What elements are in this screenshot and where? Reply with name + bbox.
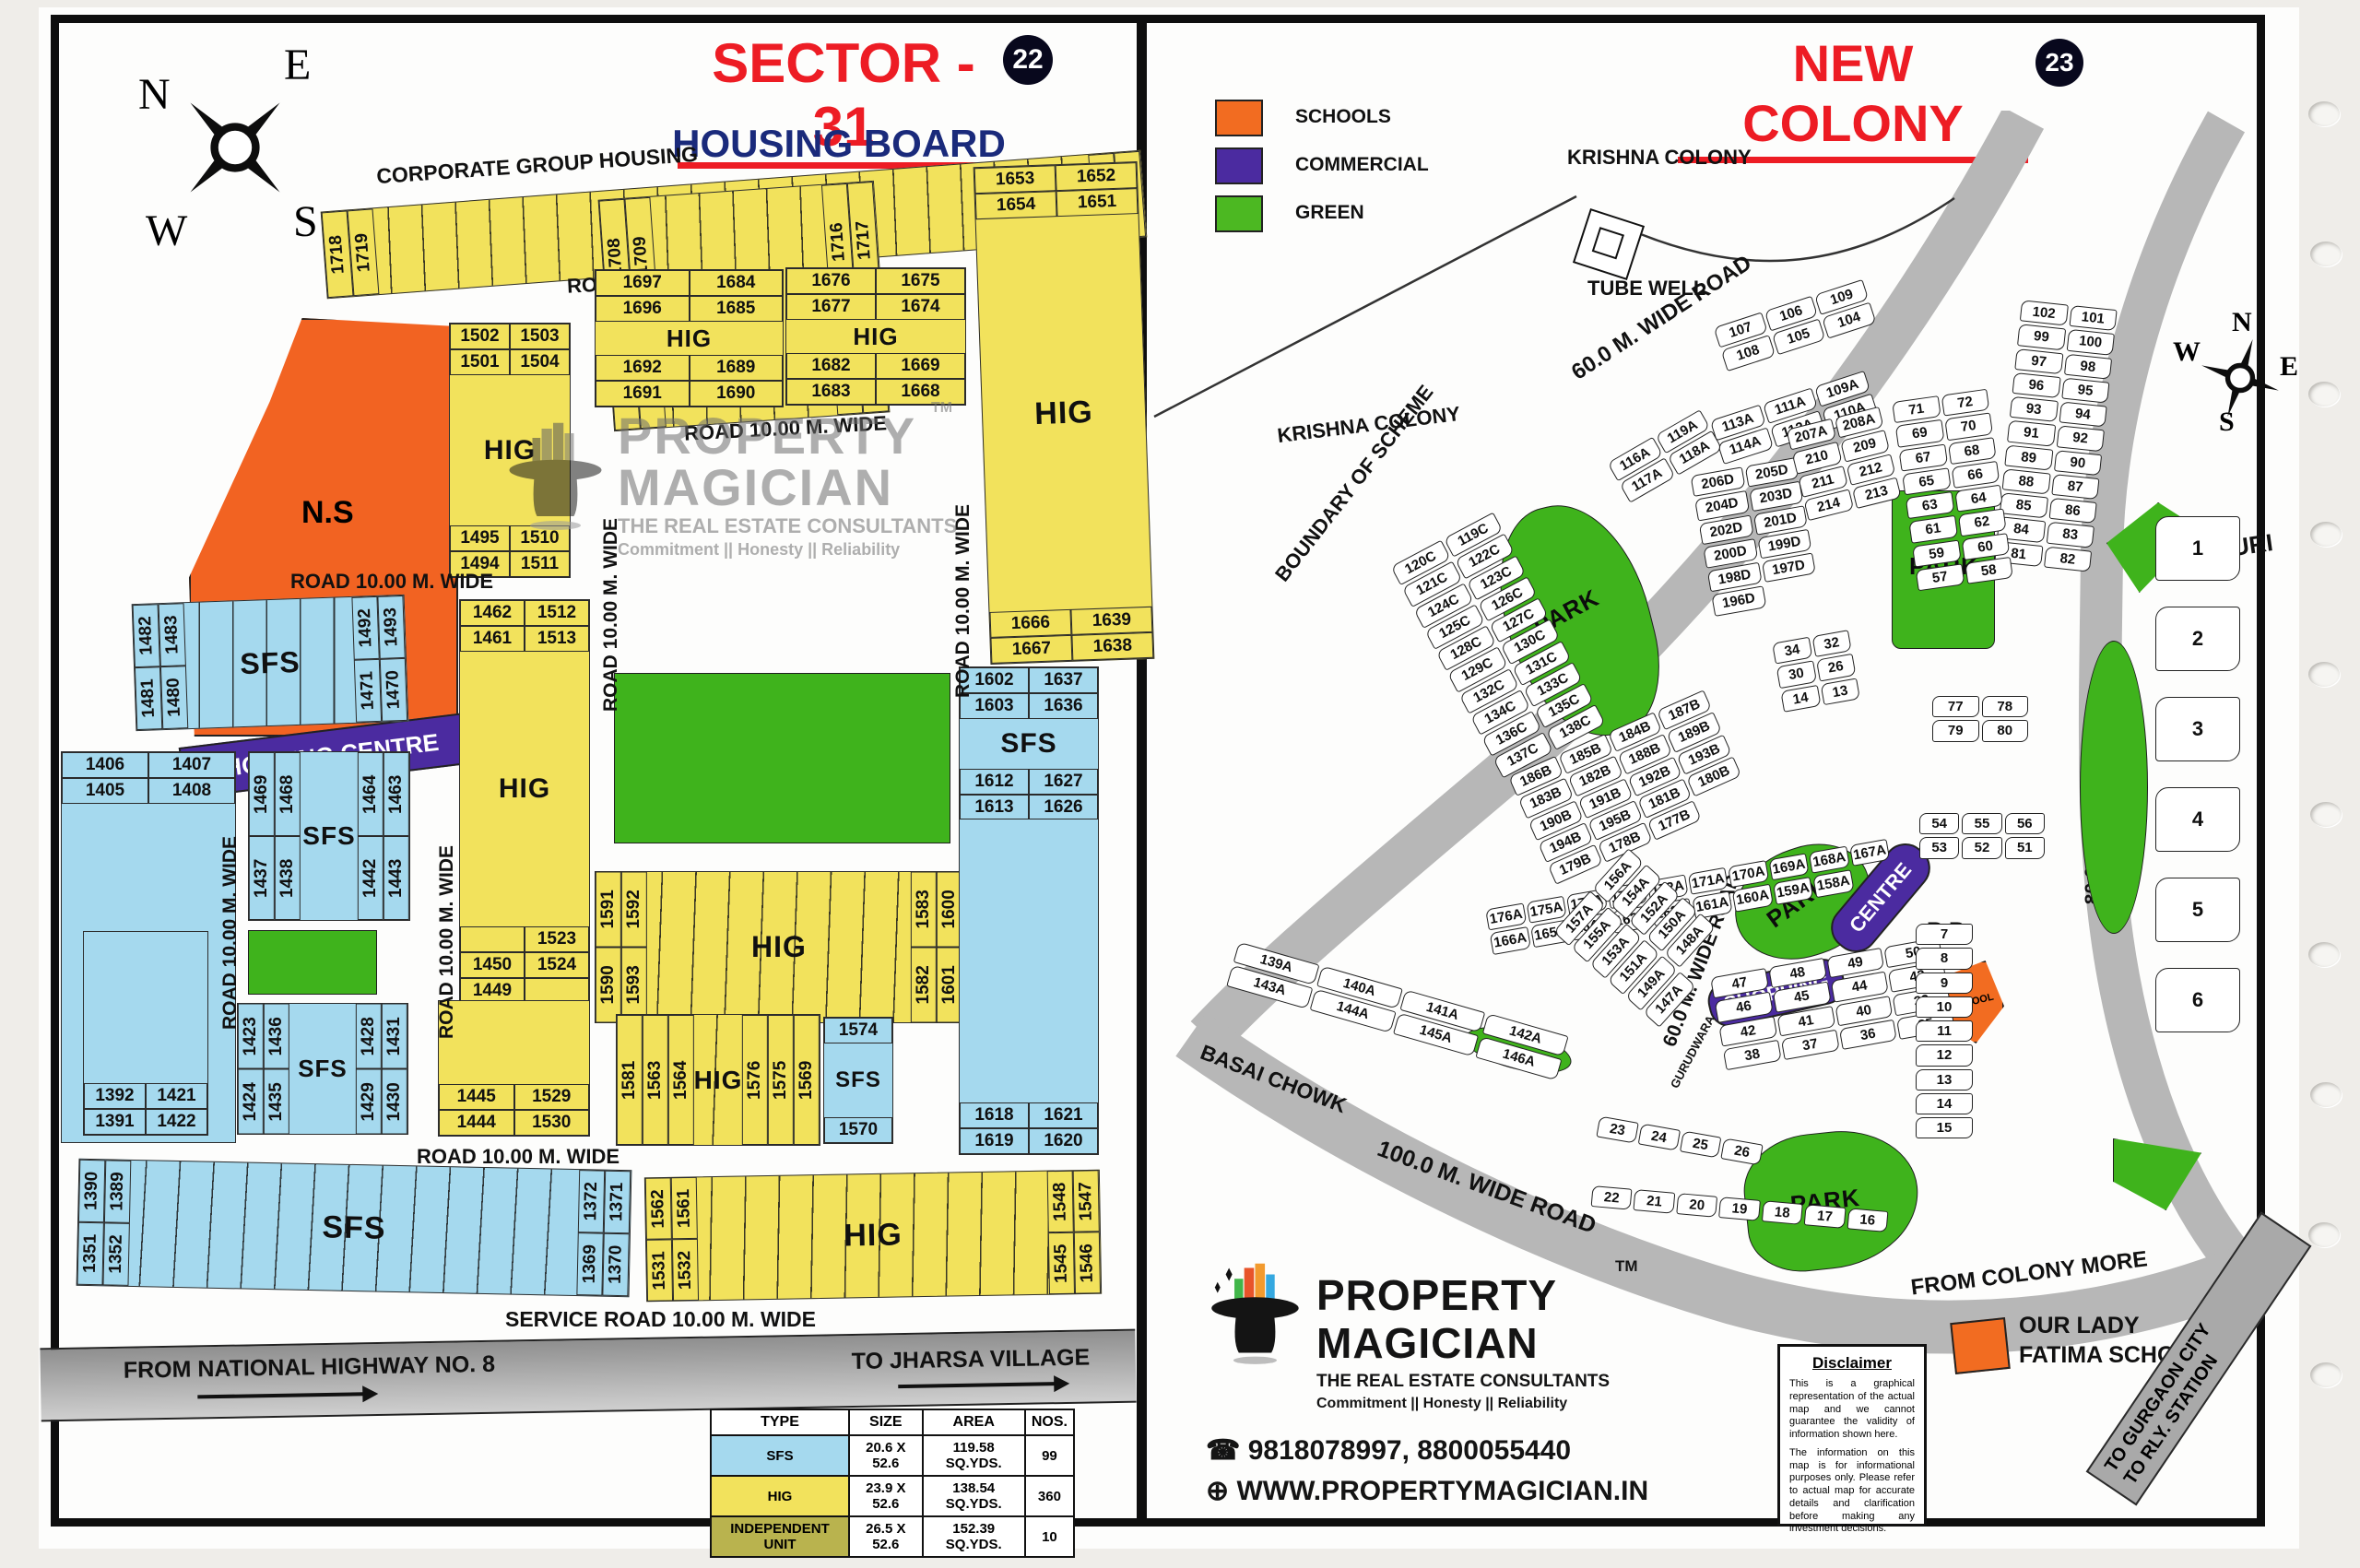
plot-label: 17 <box>1804 1204 1846 1229</box>
plot-label: 1581 <box>617 1015 643 1145</box>
plot-numbers: 1612162716131626 <box>960 769 1098 820</box>
plot-numbers: 1428143114291430 <box>356 1004 407 1134</box>
disclaimer-title: Disclaimer <box>1789 1354 1915 1373</box>
plot-label: 1407 <box>148 752 235 778</box>
plot-label: 1691 <box>596 381 690 407</box>
plot-numbers: 1392142113911422 <box>84 1083 207 1135</box>
tube-well-inner-icon <box>1592 227 1624 259</box>
plot-label: 1423 <box>238 1004 264 1069</box>
plot-label: 19 <box>1718 1197 1760 1221</box>
website-row: ⊕ WWW.PROPERTYMAGICIAN.IN <box>1206 1475 1648 1507</box>
plot-label: 1482 <box>133 604 160 667</box>
plot-label: 1636 <box>1029 693 1098 719</box>
plot-label: 1512 <box>525 600 589 626</box>
fatima-label-1: OUR LADY <box>2019 1313 2140 1339</box>
plot-label: 54 <box>1919 813 1959 834</box>
table-cell: 119.58 SQ.YDS. <box>923 1435 1025 1476</box>
magician-hat-icon <box>498 415 613 539</box>
col-size: SIZE <box>849 1409 923 1435</box>
plot-label: 1369 <box>577 1232 604 1296</box>
plot-label: 93 <box>2010 396 2059 422</box>
plot-label: 1592 <box>621 872 647 948</box>
plot-label: 1620 <box>1029 1128 1098 1154</box>
disclaimer-p1: This is a graphical representation of th… <box>1789 1378 1915 1442</box>
plot-label: 53 <box>1919 837 1959 858</box>
plot-label: 1371 <box>604 1171 631 1234</box>
plot-label: 1666 <box>989 609 1071 638</box>
plot-label: 1613 <box>960 795 1029 820</box>
plot-numbers: 1469146814371438 <box>249 752 301 920</box>
plot-label: 1576 <box>742 1015 768 1145</box>
plot-label: 92 <box>2056 425 2105 451</box>
plot-label: 9 <box>1916 973 1973 994</box>
plot-label: 1469 <box>249 752 275 836</box>
table-row: SFS20.6 X 52.6119.58 SQ.YDS.99 <box>711 1435 1074 1476</box>
block-label: SFS <box>301 752 359 920</box>
plot-label: 1564 <box>668 1015 694 1145</box>
punch-hole <box>2308 662 2340 687</box>
table-header-row: TYPE SIZE AREA NOS. <box>711 1409 1074 1435</box>
punch-hole <box>2310 1082 2342 1107</box>
plot-label: 11 <box>1916 1020 1973 1042</box>
plot-label: 1684 <box>690 270 784 296</box>
punch-hole <box>2308 382 2340 407</box>
compass-e: E <box>284 40 311 90</box>
plot-label: 102 <box>2020 300 2069 325</box>
plot-label: 1 <box>2155 516 2240 581</box>
plot-label: 1677 <box>786 294 876 320</box>
plot-label: 1531 <box>646 1239 673 1301</box>
plot-numbers: 1492149314711470 <box>352 595 407 723</box>
plot-label: 1424 <box>238 1069 264 1135</box>
disclaimer-box: Disclaimer This is a graphical represent… <box>1777 1344 1927 1527</box>
plot-numbers: 1462151214611513 <box>460 600 589 652</box>
plot-label: 1638 <box>1071 632 1153 661</box>
plot-label: 1652 <box>1056 162 1138 191</box>
plot-label: 1561 <box>671 1177 698 1239</box>
plot-label: 1574 <box>824 1018 892 1043</box>
hig-column-block: 1462151214611513 HIG 1523145015241449 <box>459 599 590 1005</box>
plot-label: 1547 <box>1073 1171 1100 1232</box>
plot-label: 1483 <box>159 603 186 666</box>
compass-rose-right: N W E S <box>2171 309 2309 447</box>
plot-label: 1562 <box>645 1178 672 1240</box>
plot-label: 18 <box>1762 1200 1803 1225</box>
hig-block-mid1: 1697168416961685 HIG 1692168916911690 <box>595 269 784 407</box>
plot-label: 1431 <box>382 1004 407 1069</box>
table-cell: 138.54 SQ.YDS. <box>923 1476 1025 1516</box>
plot-label: 67 <box>1898 443 1947 471</box>
block-label: HIG <box>460 652 589 927</box>
compass-e: E <box>2280 351 2298 383</box>
sfs-mid-block: 1469146814371438 SFS 1464146314421443 <box>248 751 410 921</box>
plot-label: 1372 <box>578 1170 605 1233</box>
compass-w: W <box>146 206 187 256</box>
plot-numbers: 1482148314811480 <box>133 603 188 730</box>
plot-numbers: 1676167516771674 <box>786 268 965 320</box>
plot-numbers: 1591159215901593 <box>596 872 647 1022</box>
brand-tagline: THE REAL ESTATE CONSULTANTS <box>1316 1372 1610 1392</box>
table-cell: 152.39 SQ.YDS. <box>923 1516 1025 1557</box>
table-cell: 99 <box>1025 1435 1074 1476</box>
block-label: HIG <box>786 320 965 354</box>
plot-label: 26 <box>1815 654 1856 681</box>
compass-n: N <box>138 69 171 120</box>
plot-numbers: 158115631564 <box>617 1015 694 1145</box>
hig-bottom-strip: 1562156115311532 HIG 1548154715451546 <box>644 1170 1102 1303</box>
brand-name2: MAGICIAN <box>1316 1318 1539 1368</box>
plot-label: 13 <box>1916 1069 1973 1091</box>
plot-label: 22 <box>1591 1185 1633 1210</box>
plot-label: 1405 <box>62 778 148 804</box>
left-page-badge: 22 <box>1003 35 1053 85</box>
plot-label: 1450 <box>460 952 525 978</box>
plot-label: 1639 <box>1070 607 1152 635</box>
plot-label: 1618 <box>960 1102 1029 1128</box>
plot-label: 1690 <box>690 381 784 407</box>
plot-label: 4 <box>2155 787 2240 852</box>
punch-hole <box>2310 242 2342 266</box>
plot-numbers: 1464146314421443 <box>358 752 409 920</box>
arrow-right-icon <box>898 1382 1055 1388</box>
plot-label: 85 <box>2000 492 2048 518</box>
watermark-tagline: THE REAL ESTATE CONSULTANTS <box>618 514 957 538</box>
spacer <box>439 1001 589 1084</box>
plot-label: 1692 <box>596 355 690 381</box>
plot-label: 66 <box>1951 461 2000 489</box>
plot-label: 101 <box>2069 305 2118 331</box>
plot-label: 96 <box>2012 372 2061 398</box>
plot-label: 1464 <box>358 752 383 836</box>
plot-label: 1674 <box>876 294 965 320</box>
plot-label: 87 <box>2051 474 2100 500</box>
ns-label: N.S <box>301 495 354 531</box>
plot-label: 63 <box>1906 491 1954 519</box>
plot-label: 1523 <box>525 926 589 952</box>
compass-w: W <box>2173 336 2201 368</box>
plot-label: 64 <box>1954 485 2003 513</box>
plot-numbers: 1682166916831668 <box>786 353 965 405</box>
punch-hole <box>2308 1222 2340 1247</box>
plot-label: 1545 <box>1048 1232 1075 1294</box>
sfs-1574-block: 1574 SFS 1570 <box>823 1017 893 1144</box>
block-label: SFS <box>128 1161 579 1295</box>
plot-label: 1463 <box>383 752 409 836</box>
hig-block-topright: 1653165216541651 HIG 1666163916671638 <box>973 161 1155 665</box>
plot-label: 1408 <box>148 778 235 804</box>
plot-label: 60 <box>1961 533 2010 560</box>
plot-label: 14 <box>1916 1093 1973 1114</box>
table-cell: HIG <box>711 1476 849 1516</box>
plot-label: 1470 <box>380 658 407 722</box>
plot-label: 77 <box>1932 696 1979 717</box>
plot-label: 6 <box>2155 968 2240 1032</box>
plot-label: 1511 <box>510 551 570 577</box>
plot-label: 1697 <box>596 270 690 296</box>
plot-numbers: 1502150315011504 <box>450 324 570 375</box>
plot-label: 10 <box>1916 996 1973 1018</box>
plot-label: 1626 <box>1029 795 1098 820</box>
plot-label: 12 <box>1916 1044 1973 1066</box>
road-label: ROAD 10.00 M. WIDE <box>417 1145 619 1169</box>
hig-block-mid2: 1676167516771674 HIG 1682166916831668 <box>785 267 966 406</box>
plot-label: 1612 <box>960 769 1029 795</box>
plot-label: 1583 <box>911 872 937 948</box>
plot-label: 16 <box>1847 1208 1888 1232</box>
disclaimer-p2: The information on this map is for infor… <box>1789 1447 1915 1536</box>
plot-label: 1430 <box>382 1069 407 1135</box>
table-body: SFS20.6 X 52.6119.58 SQ.YDS.99HIG23.9 X … <box>711 1435 1074 1557</box>
sfs-upper-band: 1482148314811480 SFS 1492149314711470 <box>132 595 409 731</box>
plot-label: 1685 <box>690 296 784 322</box>
table-row: INDEPENDENT UNIT26.5 X 52.6152.39 SQ.YDS… <box>711 1516 1074 1557</box>
plot-label: 70 <box>1944 413 1993 441</box>
plot-label: 1468 <box>275 752 301 836</box>
plot-label: 65 <box>1902 467 1951 495</box>
plot-label: 21 <box>1634 1189 1675 1214</box>
brand-name1: PROPERTY <box>1316 1270 1557 1320</box>
plot-label: 1530 <box>514 1110 590 1136</box>
watermark-tm: TM <box>931 400 952 417</box>
plot-numbers: 1523145015241449 <box>460 926 589 1004</box>
green-block-large <box>614 673 950 843</box>
table-row: HIG23.9 X 52.6138.54 SQ.YDS.360 <box>711 1476 1074 1516</box>
plot-label: 8 <box>1916 948 1973 969</box>
plot-label: 1654 <box>975 191 1057 219</box>
plot-label: 91 <box>2007 420 2056 446</box>
hig-1445-block: 1445152914441530 <box>438 1000 590 1137</box>
plot-label: 100 <box>2066 329 2115 355</box>
plot-label: 1422 <box>146 1109 207 1135</box>
plot-label: 52 <box>1962 837 2001 858</box>
compass-n: N <box>2232 307 2252 338</box>
plot-label: 1570 <box>824 1117 892 1143</box>
plot-label: 97 <box>2014 348 2063 374</box>
plot-cluster-far-right: 123456 <box>2155 516 2240 1032</box>
plot-label: 1669 <box>876 353 965 379</box>
table-cell: SFS <box>711 1435 849 1476</box>
plot-label: 3 <box>2155 697 2240 761</box>
col-area: AREA <box>923 1409 1025 1435</box>
plot-label: 78 <box>1982 696 2029 717</box>
col-type: TYPE <box>711 1409 849 1435</box>
plot-label: 69 <box>1895 419 1944 447</box>
plot-label: 83 <box>2046 522 2094 548</box>
plot-label: 1428 <box>356 1004 382 1069</box>
plot-label: 59 <box>1912 539 1961 567</box>
plot-label: 1437 <box>249 836 275 920</box>
compass-rose-left: N E S W <box>138 51 332 244</box>
plot-label: 56 <box>2005 813 2045 834</box>
plot-label: 1569 <box>794 1015 820 1145</box>
globe-icon: ⊕ <box>1206 1476 1229 1506</box>
plot-label: 1503 <box>510 324 570 349</box>
plot-label: 86 <box>2048 498 2097 524</box>
plot-numbers: 1445152914441530 <box>439 1084 589 1136</box>
website-url: WWW.PROPERTYMAGICIAN.IN <box>1236 1476 1648 1506</box>
road-label-vertical: ROAD 10.00 M. WIDE <box>219 836 242 1030</box>
plot-label: 62 <box>1957 509 2006 536</box>
spacer <box>84 932 207 1083</box>
plot-label: 1492 <box>352 596 380 660</box>
plot-label: 1442 <box>358 836 383 920</box>
map-page: N E S W SECTOR - 31 22 HOUSING BOARD COR… <box>0 0 2360 1568</box>
punch-hole <box>2310 1362 2342 1387</box>
plot-label: 1651 <box>1056 188 1139 217</box>
watermark-motto: Commitment || Honesty || Reliability <box>618 540 900 560</box>
plot-label: 5 <box>2155 878 2240 942</box>
plot-label: 2 <box>2155 607 2240 671</box>
road-label: ROAD 10.00 M. WIDE <box>290 570 493 594</box>
plot-label: 1481 <box>135 666 162 730</box>
road-label-vertical: ROAD 10.00 M. WIDE <box>436 845 458 1039</box>
plot-label: 1682 <box>786 353 876 379</box>
plot-label: 7 <box>1916 924 1973 945</box>
plot-label: 94 <box>2059 401 2107 427</box>
plot-label: 1471 <box>354 659 382 723</box>
plot-label: 1370 <box>603 1233 630 1297</box>
phone-icon: ☎ <box>1206 1435 1240 1466</box>
plot-label: 1582 <box>911 948 937 1023</box>
plot-label: 1675 <box>876 268 965 294</box>
plot-label: 1532 <box>672 1239 699 1301</box>
plot-label: 1429 <box>356 1069 382 1135</box>
plot-label: 99 <box>2017 324 2066 349</box>
plot-label: 1619 <box>960 1128 1029 1154</box>
plot-label: 1461 <box>460 626 525 652</box>
plot-numbers: 1666163916671638 <box>989 607 1153 664</box>
plot-cluster-mid-small: 343230261413 <box>1772 630 1860 712</box>
phone-row: ☎ 9818078997, 8800055440 <box>1206 1434 1571 1467</box>
block-label: SFS <box>960 719 1098 769</box>
plot-label: 1421 <box>146 1083 207 1109</box>
plot-label: 1653 <box>974 165 1056 194</box>
plot-label: 1406 <box>62 752 148 778</box>
punch-hole <box>2310 522 2342 547</box>
plot-numbers: 1653165216541651 <box>974 162 1139 219</box>
plot-label: 1546 <box>1074 1232 1101 1293</box>
plot-label: 88 <box>2002 468 2051 494</box>
plot-label: 1443 <box>383 836 409 920</box>
plot-label: 1391 <box>84 1109 146 1135</box>
plot-numbers: 1562156115311532 <box>645 1177 699 1301</box>
plot-label: 1502 <box>450 324 510 349</box>
plot-numbers: 1570 <box>824 1117 892 1143</box>
phone-numbers: 9818078997, 8800055440 <box>1248 1435 1571 1466</box>
arrow-right-icon <box>197 1392 363 1398</box>
block-label: HIG <box>596 322 783 356</box>
plot-label: 55 <box>1962 813 2001 834</box>
plot-cluster-77: 77787980 <box>1932 696 2028 742</box>
plot-label: 79 <box>1932 720 1979 741</box>
magician-hat-icon <box>1204 1244 1313 1383</box>
watermark-name2: MAGICIAN <box>618 457 893 517</box>
block-label: HIG <box>694 1015 743 1145</box>
brand-motto: Commitment || Honesty || Reliability <box>1316 1396 1567 1412</box>
green-roadside-strip <box>2080 641 2148 934</box>
plot-label: 1504 <box>510 349 570 375</box>
plot-numbers: 1697168416961685 <box>596 270 783 322</box>
plot-label: 1548 <box>1047 1171 1074 1232</box>
compass-star-icon <box>171 83 300 212</box>
table-cell: 10 <box>1025 1516 1074 1557</box>
plot-label: 1593 <box>621 948 647 1023</box>
left-panel-subtitle: HOUSING BOARD <box>645 122 1032 166</box>
plot-numbers: 1406140714051408 <box>62 752 235 804</box>
sfs-1423-block: 1423143614241435 SFS 1428143114291430 <box>237 1003 408 1135</box>
plot-numbers: 1602163716031636 <box>960 667 1098 719</box>
compass-star-icon <box>2199 336 2282 419</box>
plot-label: 1591 <box>596 872 621 948</box>
plot-label: 1689 <box>690 355 784 381</box>
compass-s: S <box>2219 407 2235 438</box>
plot-numbers: 1423143614241435 <box>238 1004 289 1134</box>
plot-label: 30 <box>1776 661 1817 689</box>
plot-label: 1389 <box>104 1160 131 1223</box>
plot-type-table: TYPE SIZE AREA NOS. SFS20.6 X 52.6119.58… <box>710 1409 1075 1558</box>
plot-numbers: 17181719 <box>322 208 380 298</box>
highway-label: FROM NATIONAL HIGHWAY NO. 8 <box>124 1351 496 1385</box>
table-cell: 20.6 X 52.6 <box>849 1435 923 1476</box>
plot-cluster-fifties: 545556535251 <box>1919 813 2045 859</box>
hig-1563-block: 158115631564 HIG 157615751569 <box>616 1014 820 1146</box>
plot-label: 1462 <box>460 600 525 626</box>
plot-numbers: 1390138913511352 <box>77 1160 132 1286</box>
col-nos: NOS. <box>1025 1409 1074 1435</box>
block-label: SFS <box>183 597 356 728</box>
green-block-small <box>248 930 377 995</box>
plot-label: 1676 <box>786 268 876 294</box>
compass-s: S <box>293 196 318 247</box>
punch-hole <box>2310 802 2342 827</box>
plot-label: 1480 <box>160 666 188 729</box>
block-label: SFS <box>289 1004 357 1134</box>
plot-label: 95 <box>2061 377 2110 403</box>
plot-label: 90 <box>2054 450 2103 476</box>
plot-label: 1590 <box>596 948 621 1023</box>
plot-label: 15 <box>1916 1117 1973 1138</box>
plot-label: 1444 <box>439 1110 514 1136</box>
jharsa-label: TO JHARSA VILLAGE <box>852 1345 1091 1376</box>
plot-label: 1435 <box>264 1069 289 1135</box>
plot-label: 1438 <box>275 836 301 920</box>
table-cell: 360 <box>1025 1476 1074 1516</box>
plot-label: 1627 <box>1029 769 1098 795</box>
plot-label: 1436 <box>264 1004 289 1069</box>
plot-numbers: 157615751569 <box>742 1015 820 1145</box>
table-cell: 23.9 X 52.6 <box>849 1476 923 1516</box>
plot-numbers: 1692168916911690 <box>596 355 783 407</box>
plot-label: 1563 <box>643 1015 668 1145</box>
brand-logo-block: PROPERTY TM MAGICIAN THE REAL ESTATE CON… <box>1198 1243 1659 1519</box>
plot-label: 1696 <box>596 296 690 322</box>
right-page-badge: 23 <box>2035 39 2083 87</box>
plot-label: 20 <box>1676 1193 1717 1218</box>
plot-numbers: 1372137113691370 <box>577 1170 631 1296</box>
punch-hole <box>2308 942 2340 967</box>
plot-label: 61 <box>1908 515 1957 543</box>
sfs-1392-block: 1392142113911422 <box>83 931 208 1136</box>
plot-label: 1621 <box>1029 1102 1098 1128</box>
plot-numbers: 1574 <box>824 1018 892 1043</box>
plot-label: 51 <box>2005 837 2045 858</box>
plot-label: 98 <box>2064 353 2113 379</box>
punch-hole <box>2308 101 2340 126</box>
plot-label: 1352 <box>102 1222 129 1286</box>
sfs-right-column: 1602163716031636 SFS 1612162716131626 16… <box>959 666 1099 1155</box>
plot-label: 1575 <box>768 1015 794 1145</box>
sfs-bottom-strip: 1390138913511352 SFS 1372137113691370 <box>77 1159 632 1298</box>
